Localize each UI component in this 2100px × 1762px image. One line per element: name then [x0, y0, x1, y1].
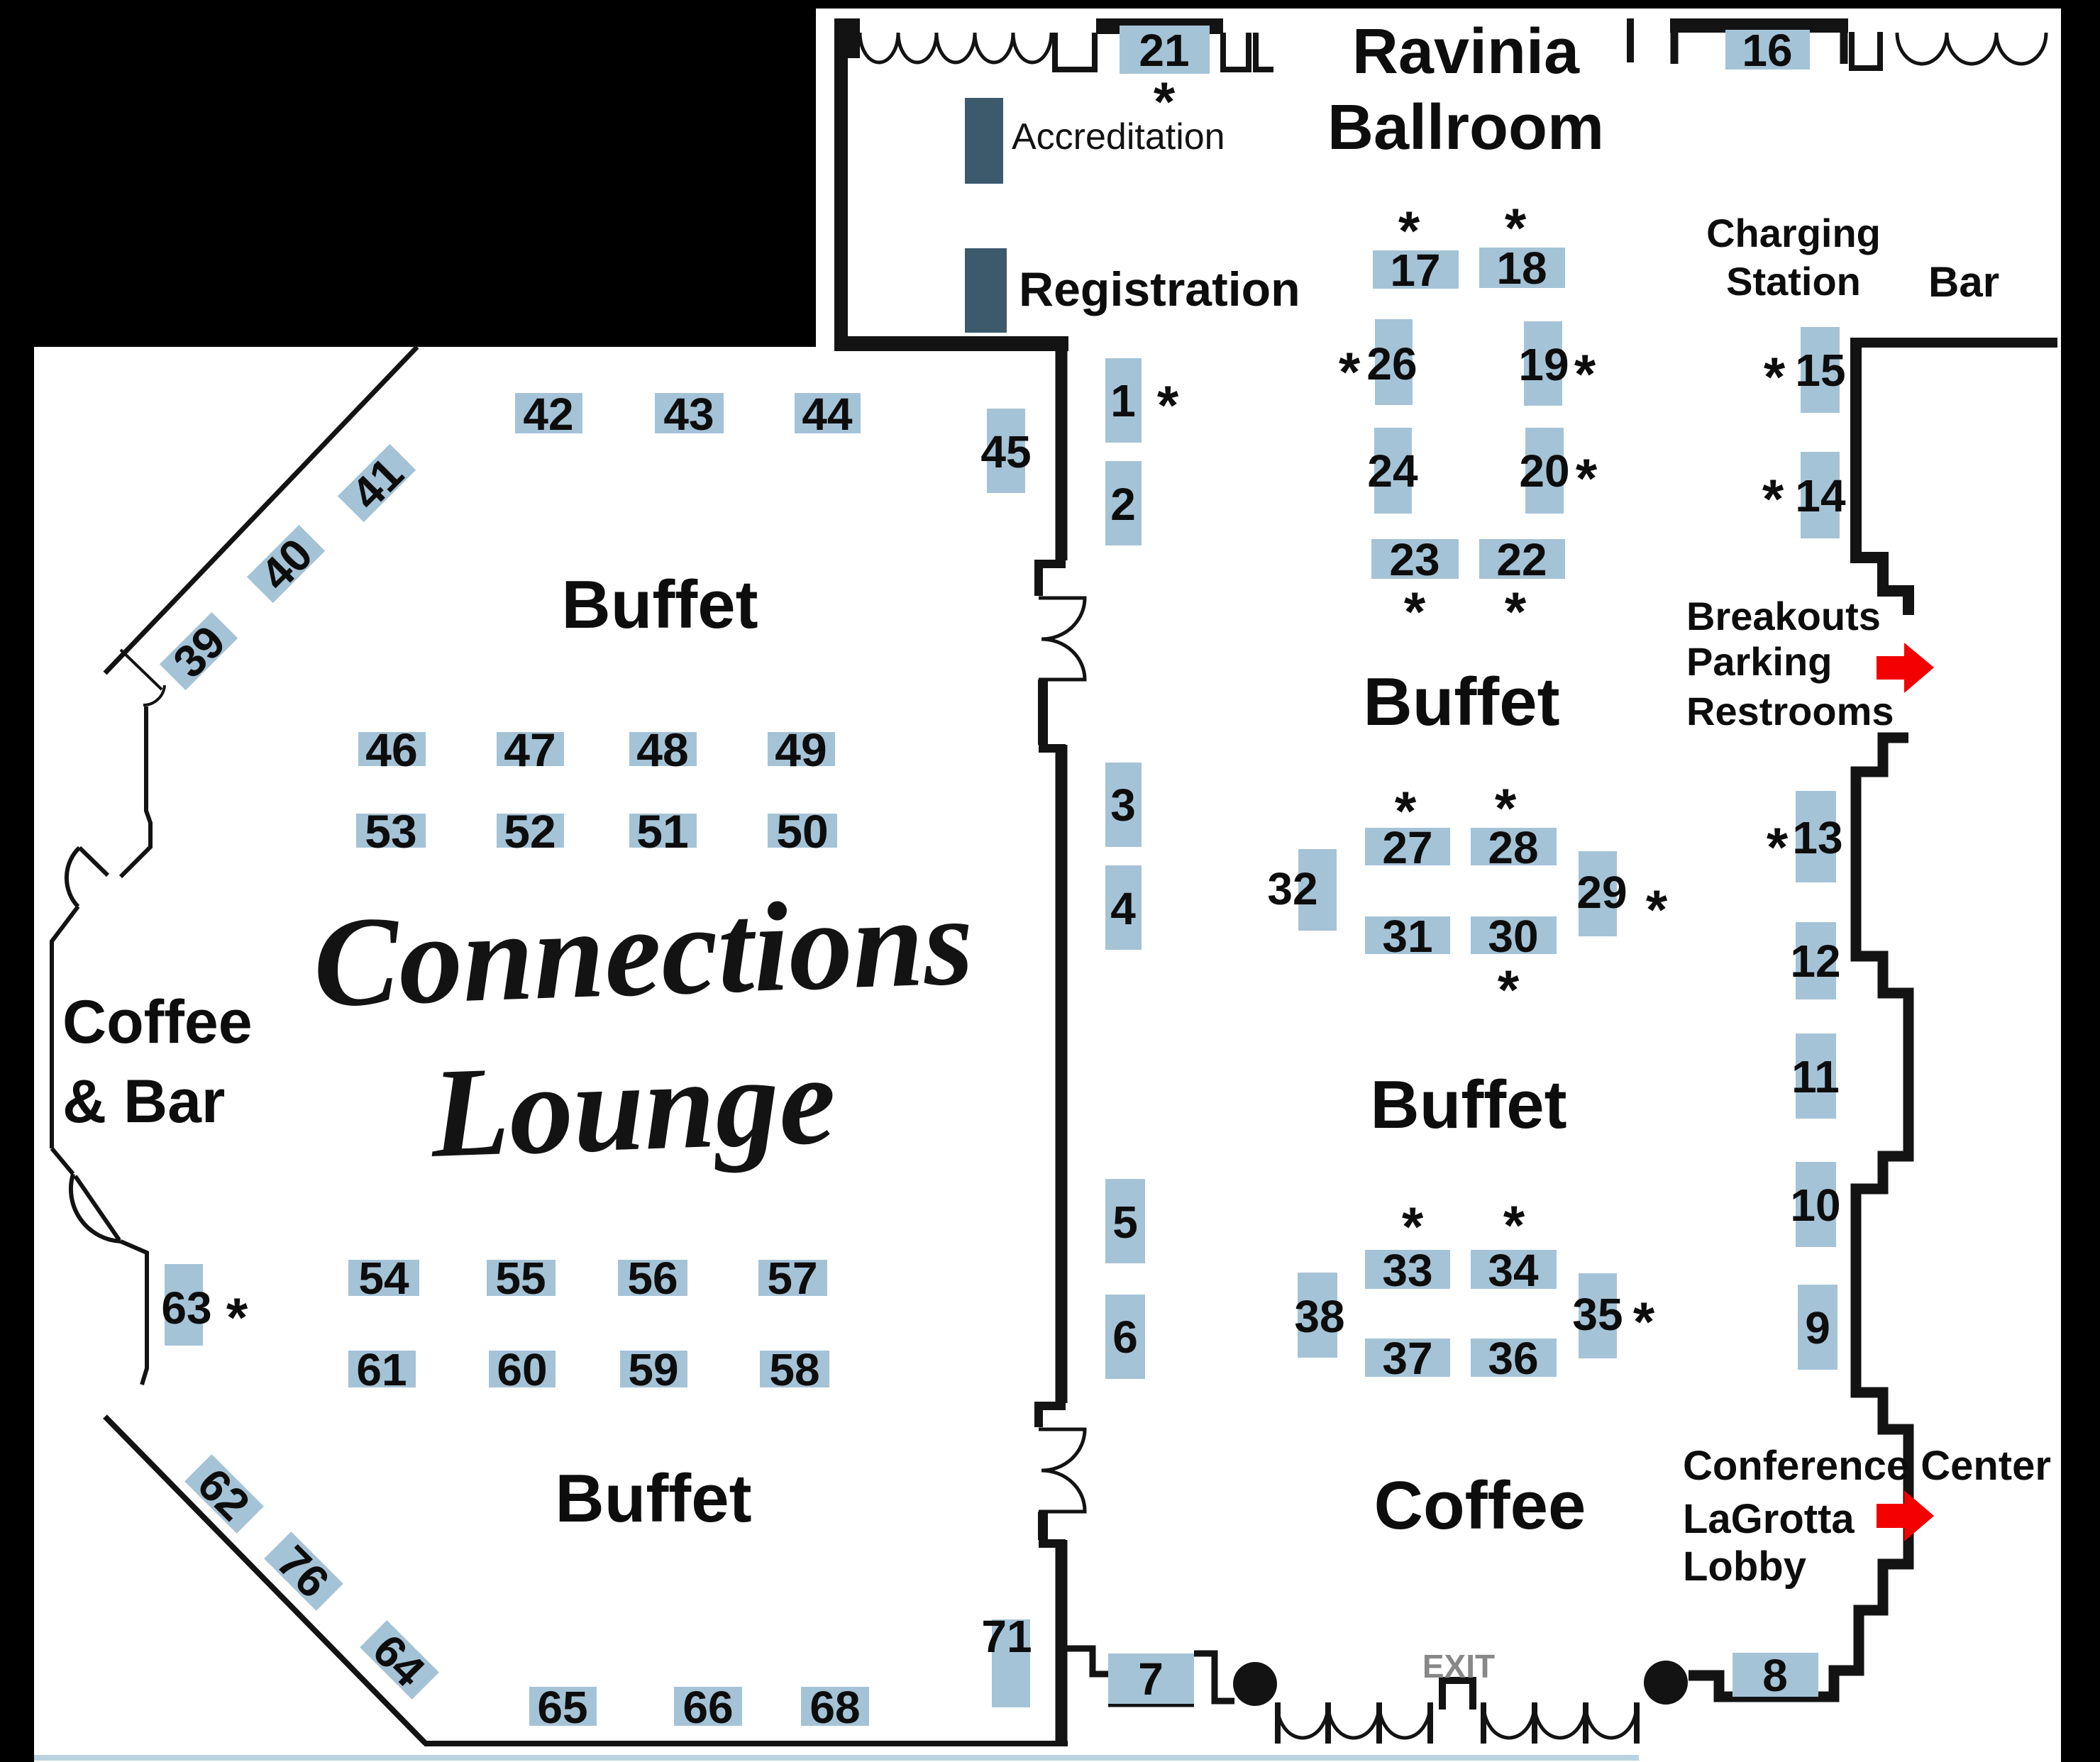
- svg-text:3: 3: [1110, 780, 1136, 831]
- svg-text:Buffet: Buffet: [1370, 1067, 1566, 1143]
- svg-text:2: 2: [1110, 479, 1136, 530]
- svg-text:60: 60: [497, 1344, 547, 1395]
- svg-text:15: 15: [1795, 345, 1845, 396]
- svg-text:26: 26: [1366, 338, 1417, 389]
- svg-text:38: 38: [1294, 1291, 1344, 1342]
- svg-text:44: 44: [802, 389, 853, 440]
- svg-text:*: *: [1646, 878, 1668, 941]
- svg-text:37: 37: [1382, 1333, 1432, 1384]
- svg-text:Bar: Bar: [1928, 258, 1999, 306]
- svg-text:56: 56: [627, 1253, 678, 1304]
- svg-text:Parking: Parking: [1686, 639, 1832, 684]
- svg-text:54: 54: [358, 1253, 409, 1304]
- svg-text:32: 32: [1267, 863, 1317, 914]
- svg-text:Lobby: Lobby: [1683, 1544, 1806, 1590]
- svg-text:8: 8: [1762, 1650, 1788, 1701]
- svg-text:Buffet: Buffet: [1363, 664, 1559, 740]
- svg-text:21: 21: [1139, 25, 1189, 76]
- svg-text:53: 53: [365, 805, 416, 858]
- svg-text:Station: Station: [1726, 259, 1861, 304]
- svg-text:45: 45: [980, 426, 1031, 477]
- svg-text:34: 34: [1488, 1245, 1539, 1296]
- svg-text:Ravinia: Ravinia: [1352, 16, 1580, 87]
- svg-text:*: *: [1574, 343, 1596, 405]
- svg-text:13: 13: [1792, 812, 1842, 863]
- svg-text:*: *: [1404, 580, 1426, 643]
- svg-text:24: 24: [1367, 445, 1418, 497]
- svg-text:14: 14: [1795, 470, 1846, 521]
- svg-text:*: *: [1339, 340, 1361, 403]
- svg-text:*: *: [1505, 580, 1527, 643]
- svg-text:16: 16: [1742, 25, 1792, 76]
- svg-text:*: *: [1762, 467, 1784, 530]
- svg-text:17: 17: [1390, 245, 1440, 296]
- svg-text:28: 28: [1488, 822, 1538, 873]
- svg-text:22: 22: [1496, 534, 1547, 585]
- svg-text:59: 59: [628, 1344, 678, 1395]
- svg-text:48: 48: [636, 724, 688, 776]
- svg-text:*: *: [226, 1286, 248, 1348]
- svg-text:52: 52: [504, 805, 556, 858]
- svg-text:*: *: [1576, 447, 1598, 509]
- svg-text:10: 10: [1790, 1180, 1840, 1231]
- svg-text:Registration: Registration: [1019, 262, 1300, 316]
- svg-text:63: 63: [161, 1282, 211, 1334]
- svg-text:*: *: [1764, 345, 1786, 408]
- svg-text:58: 58: [769, 1344, 819, 1395]
- svg-text:57: 57: [767, 1253, 817, 1304]
- svg-text:Connections: Connections: [311, 870, 976, 1034]
- svg-text:49: 49: [775, 724, 827, 776]
- svg-text:Buffet: Buffet: [555, 1461, 751, 1536]
- svg-text:11: 11: [1791, 1051, 1840, 1102]
- svg-text:68: 68: [809, 1682, 860, 1733]
- svg-text:20: 20: [1519, 445, 1569, 497]
- svg-text:*: *: [1767, 816, 1789, 878]
- svg-text:Restrooms: Restrooms: [1686, 689, 1894, 733]
- svg-text:*: *: [1157, 374, 1179, 436]
- svg-text:Charging: Charging: [1706, 211, 1881, 255]
- svg-text:65: 65: [537, 1682, 587, 1733]
- svg-text:EXIT: EXIT: [1422, 1648, 1495, 1685]
- svg-text:18: 18: [1496, 243, 1547, 294]
- svg-text:9: 9: [1805, 1302, 1830, 1353]
- svg-text:23: 23: [1389, 534, 1439, 585]
- svg-text:19: 19: [1518, 339, 1569, 390]
- svg-text:1: 1: [1110, 375, 1136, 426]
- svg-text:& Bar: & Bar: [62, 1068, 225, 1136]
- svg-text:Lounge: Lounge: [427, 1029, 838, 1184]
- svg-text:31: 31: [1382, 911, 1432, 962]
- svg-text:55: 55: [495, 1253, 546, 1304]
- svg-text:33: 33: [1382, 1245, 1432, 1296]
- svg-text:27: 27: [1382, 822, 1432, 873]
- svg-text:*: *: [1498, 958, 1520, 1021]
- svg-text:6: 6: [1112, 1312, 1138, 1363]
- svg-text:4: 4: [1110, 883, 1136, 934]
- svg-text:Coffee: Coffee: [1374, 1468, 1586, 1544]
- svg-text:Accreditation: Accreditation: [1012, 116, 1225, 157]
- svg-text:50: 50: [776, 805, 828, 858]
- svg-text:Breakouts: Breakouts: [1686, 594, 1881, 638]
- svg-text:Conference Center: Conference Center: [1683, 1443, 2051, 1489]
- svg-text:66: 66: [682, 1682, 733, 1733]
- svg-text:30: 30: [1488, 911, 1538, 962]
- svg-text:43: 43: [663, 389, 714, 440]
- svg-text:35: 35: [1572, 1289, 1623, 1340]
- svg-text:12: 12: [1790, 936, 1840, 987]
- svg-text:51: 51: [636, 805, 688, 858]
- svg-text:Coffee: Coffee: [62, 988, 253, 1056]
- svg-text:7: 7: [1138, 1653, 1164, 1705]
- svg-text:LaGrotta: LaGrotta: [1683, 1496, 1855, 1542]
- svg-text:42: 42: [523, 389, 573, 440]
- svg-text:Buffet: Buffet: [561, 567, 758, 643]
- svg-text:36: 36: [1488, 1333, 1538, 1384]
- svg-text:47: 47: [504, 724, 556, 776]
- svg-text:46: 46: [365, 724, 417, 776]
- svg-text:*: *: [1633, 1290, 1655, 1353]
- svg-text:Ballroom: Ballroom: [1327, 92, 1604, 163]
- svg-text:71: 71: [981, 1611, 1032, 1662]
- svg-text:29: 29: [1576, 867, 1627, 918]
- svg-text:61: 61: [356, 1344, 407, 1395]
- svg-text:5: 5: [1112, 1197, 1138, 1248]
